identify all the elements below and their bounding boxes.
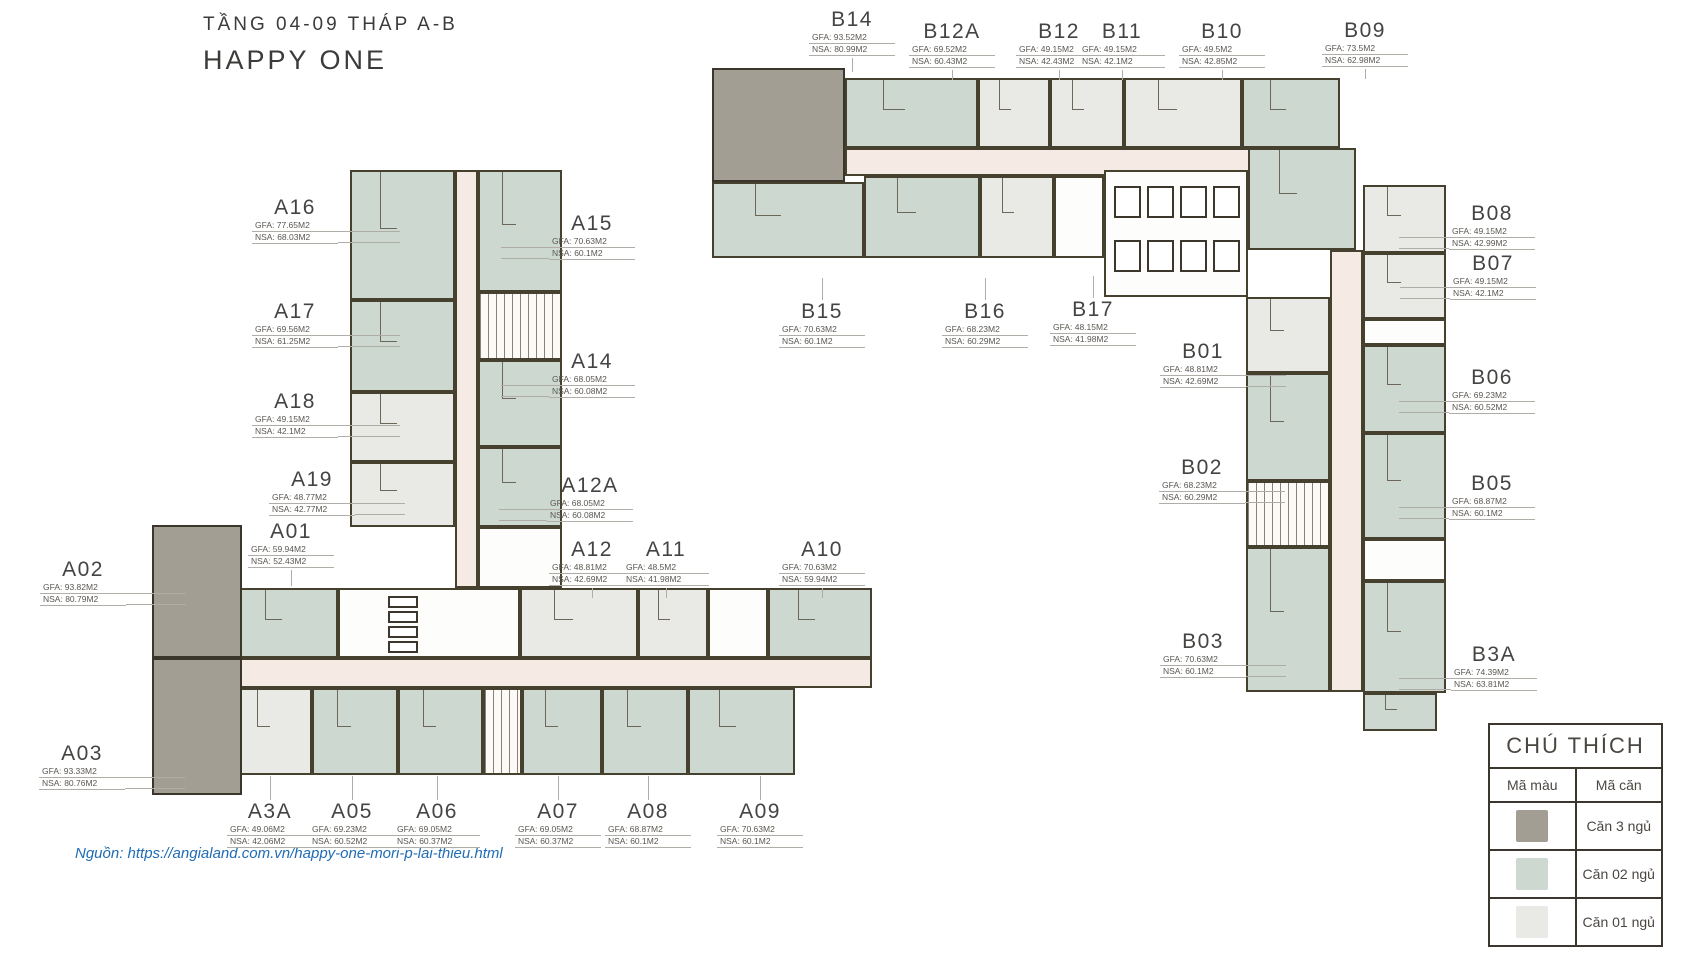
project-title: HAPPY ONE xyxy=(203,45,458,76)
unit-nsa: NSA: 61.25M2 xyxy=(252,336,338,348)
unit-nsa: NSA: 42.1M2 xyxy=(1079,56,1165,68)
footprint-b3a xyxy=(1363,581,1446,693)
elevator-shaft xyxy=(388,626,418,638)
unit-nsa: NSA: 42.1M2 xyxy=(1450,288,1536,300)
legend-label-3bed: Căn 3 ngủ xyxy=(1577,803,1662,849)
unit-id: A10 xyxy=(779,538,865,562)
corridor-a-vertical xyxy=(455,170,478,588)
unit-label-b3a: B3AGFA: 74.39M2NSA: 63.81M2 xyxy=(1451,643,1537,691)
leader-line-a15 xyxy=(501,247,549,248)
unit-id: B02 xyxy=(1159,456,1245,480)
legend: CHÚ THÍCH Mã màu Mã căn Căn 3 ngủ Căn 02… xyxy=(1488,723,1663,947)
unit-label-a09: A09GFA: 70.63M2NSA: 60.1M2 xyxy=(717,800,803,848)
unit-label-a18: A18GFA: 49.15M2NSA: 42.1M2 xyxy=(252,390,338,438)
unit-nsa: NSA: 80.76M2 xyxy=(39,778,125,790)
legend-col-unit: Mã căn xyxy=(1577,769,1662,801)
unit-label-a10: A10GFA: 70.63M2NSA: 59.94M2 xyxy=(779,538,865,586)
elevator-shaft xyxy=(388,641,418,653)
footprint-a12 xyxy=(520,588,638,658)
unit-gfa: GFA: 70.63M2 xyxy=(1160,654,1246,666)
leader-line-a3a xyxy=(270,776,271,800)
footprint-a07 xyxy=(522,688,602,775)
unit-id: B06 xyxy=(1449,366,1535,390)
unit-label-a12a: A12AGFA: 68.05M2NSA: 60.08M2 xyxy=(547,474,633,522)
footprint-b12 xyxy=(978,78,1050,148)
legend-title: CHÚ THÍCH xyxy=(1490,725,1661,769)
leader-line-b09 xyxy=(1365,69,1366,79)
unit-id: A16 xyxy=(252,196,338,220)
leader-line-a05 xyxy=(352,776,353,800)
unit-gfa: GFA: 69.05M2 xyxy=(515,824,601,836)
footprint-a18 xyxy=(350,392,455,462)
unit-id: B09 xyxy=(1322,19,1408,43)
unit-gfa: GFA: 68.87M2 xyxy=(605,824,691,836)
unit-gfa: GFA: 69.56M2 xyxy=(252,324,338,336)
unit-nsa: NSA: 60.08M2 xyxy=(549,386,635,398)
unit-gfa: GFA: 69.05M2 xyxy=(394,824,480,836)
leader-line-a15 xyxy=(501,258,549,259)
unit-nsa: NSA: 60.08M2 xyxy=(547,510,633,522)
footprint-b-mid xyxy=(1054,176,1104,258)
unit-id: B11 xyxy=(1079,20,1165,44)
unit-label-a14: A14GFA: 68.05M2NSA: 60.08M2 xyxy=(549,350,635,398)
unit-nsa: NSA: 62.98M2 xyxy=(1322,55,1408,67)
elevator-shaft xyxy=(1180,186,1207,218)
leader-line-b12 xyxy=(1059,70,1060,80)
footprint-b14 xyxy=(712,68,845,182)
unit-id: A15 xyxy=(549,212,635,236)
footprint-b16 xyxy=(864,176,980,258)
unit-nsa: NSA: 60.1M2 xyxy=(549,248,635,260)
leader-line-b10 xyxy=(1222,70,1223,80)
leader-line-b3a xyxy=(1399,678,1451,679)
footprint-a11 xyxy=(638,588,708,658)
footprint-b10 xyxy=(1124,78,1242,148)
unit-gfa: GFA: 70.63M2 xyxy=(779,324,865,336)
elevator-shaft xyxy=(388,596,418,608)
unit-label-a17: A17GFA: 69.56M2NSA: 61.25M2 xyxy=(252,300,338,348)
unit-id: B01 xyxy=(1160,340,1246,364)
unit-nsa: NSA: 42.85M2 xyxy=(1179,56,1265,68)
unit-id: A08 xyxy=(605,800,691,824)
legend-swatch-3bed xyxy=(1516,810,1548,842)
elevator-shaft xyxy=(1213,186,1240,218)
unit-label-b12a: B12AGFA: 69.52M2NSA: 60.43M2 xyxy=(909,20,995,68)
unit-label-b17: B17GFA: 48.15M2NSA: 41.98M2 xyxy=(1050,298,1136,346)
legend-label-1bed: Căn 01 ngủ xyxy=(1577,899,1662,945)
unit-id: B05 xyxy=(1449,472,1535,496)
unit-nsa: NSA: 60.52M2 xyxy=(1449,402,1535,414)
unit-label-a06: A06GFA: 69.05M2NSA: 60.37M2 xyxy=(394,800,480,848)
unit-id: B17 xyxy=(1050,298,1136,322)
unit-id: A19 xyxy=(269,468,355,492)
leader-line-b01 xyxy=(1246,386,1286,387)
leader-line-b07 xyxy=(1400,298,1450,299)
leader-line-a09 xyxy=(760,776,761,800)
unit-id: B16 xyxy=(942,300,1028,324)
unit-gfa: GFA: 48.77M2 xyxy=(269,492,355,504)
elevator-shaft xyxy=(1147,240,1174,272)
legend-col-color: Mã màu xyxy=(1490,769,1577,801)
unit-label-a08: A08GFA: 68.87M2NSA: 60.1M2 xyxy=(605,800,691,848)
unit-label-b06: B06GFA: 69.23M2NSA: 60.52M2 xyxy=(1449,366,1535,414)
unit-id: B10 xyxy=(1179,20,1265,44)
leader-line-b3a xyxy=(1399,689,1451,690)
footprint-b11 xyxy=(1050,78,1124,148)
unit-nsa: NSA: 60.52M2 xyxy=(309,836,395,848)
leader-line-a01 xyxy=(291,570,292,586)
leader-line-a16 xyxy=(338,231,400,232)
unit-label-b10: B10GFA: 49.5M2NSA: 42.85M2 xyxy=(1179,20,1265,68)
elevator-core-a xyxy=(338,588,520,658)
unit-label-a03: A03GFA: 93.33M2NSA: 80.76M2 xyxy=(39,742,125,790)
leader-line-a18 xyxy=(338,436,400,437)
footprint-b15 xyxy=(712,182,864,258)
leader-line-b12a xyxy=(952,70,953,80)
unit-gfa: GFA: 48.5M2 xyxy=(623,562,709,574)
floorplan-canvas: TẦNG 04-09 THÁP A-B HAPPY ONE xyxy=(0,0,1700,956)
unit-id: B12A xyxy=(909,20,995,44)
footprint-a05 xyxy=(312,688,398,775)
unit-id: A3A xyxy=(227,800,313,824)
footprint-a09 xyxy=(688,688,795,775)
leader-line-b03 xyxy=(1246,665,1286,666)
unit-label-b09: B09GFA: 73.5M2NSA: 62.98M2 xyxy=(1322,19,1408,67)
unit-gfa: GFA: 68.87M2 xyxy=(1449,496,1535,508)
legend-label-2bed: Căn 02 ngủ xyxy=(1577,851,1662,897)
footprint-b03 xyxy=(1246,547,1330,692)
unit-id: B15 xyxy=(779,300,865,324)
leader-line-b08 xyxy=(1399,237,1449,238)
unit-id: B3A xyxy=(1451,643,1537,667)
leader-line-b01 xyxy=(1246,375,1286,376)
unit-id: A09 xyxy=(717,800,803,824)
unit-nsa: NSA: 42.1M2 xyxy=(252,426,338,438)
unit-nsa: NSA: 42.06M2 xyxy=(227,836,313,848)
footprint-b05 xyxy=(1363,433,1446,539)
leader-line-a02 xyxy=(126,593,186,594)
footprint-a08 xyxy=(602,688,688,775)
unit-nsa: NSA: 68.03M2 xyxy=(252,232,338,244)
unit-label-a12: A12GFA: 48.81M2NSA: 42.69M2 xyxy=(549,538,635,586)
unit-gfa: GFA: 49.15M2 xyxy=(1449,226,1535,238)
footprint-b3a-ext xyxy=(1363,693,1437,731)
corridor-a-horizontal xyxy=(235,658,872,688)
leader-line-b16 xyxy=(985,278,986,300)
footprint-b-corner xyxy=(1248,148,1356,250)
leader-line-b02 xyxy=(1245,491,1285,492)
unit-gfa: GFA: 48.81M2 xyxy=(1160,364,1246,376)
leader-line-a14 xyxy=(501,385,549,386)
unit-nsa: NSA: 60.29M2 xyxy=(942,336,1028,348)
unit-nsa: NSA: 60.1M2 xyxy=(605,836,691,848)
unit-label-a11: A11GFA: 48.5M2NSA: 41.98M2 xyxy=(623,538,709,586)
unit-gfa: GFA: 48.81M2 xyxy=(549,562,635,574)
unit-nsa: NSA: 60.37M2 xyxy=(515,836,601,848)
unit-nsa: NSA: 60.43M2 xyxy=(909,56,995,68)
unit-gfa: GFA: 73.5M2 xyxy=(1322,43,1408,55)
unit-nsa: NSA: 52.43M2 xyxy=(248,556,334,568)
leader-line-a16 xyxy=(338,242,400,243)
footprint-a-mid xyxy=(708,588,768,658)
leader-line-b05 xyxy=(1399,518,1449,519)
leader-line-b02 xyxy=(1245,502,1285,503)
footprint-b-gap1 xyxy=(1363,319,1446,345)
footprint-b17 xyxy=(980,176,1054,258)
unit-label-a3a: A3AGFA: 49.06M2NSA: 42.06M2 xyxy=(227,800,313,848)
footprint-b-gap2 xyxy=(1363,539,1446,581)
unit-gfa: GFA: 68.23M2 xyxy=(942,324,1028,336)
unit-gfa: GFA: 93.33M2 xyxy=(39,766,125,778)
unit-id: B14 xyxy=(809,8,895,32)
footprint-a01 xyxy=(235,588,338,658)
unit-id: A02 xyxy=(40,558,126,582)
unit-nsa: NSA: 42.99M2 xyxy=(1449,238,1535,250)
unit-label-b08: B08GFA: 49.15M2NSA: 42.99M2 xyxy=(1449,202,1535,250)
unit-id: A18 xyxy=(252,390,338,414)
corridor-b-vertical xyxy=(1330,250,1363,692)
unit-nsa: NSA: 42.77M2 xyxy=(269,504,355,516)
unit-gfa: GFA: 49.15M2 xyxy=(252,414,338,426)
unit-gfa: GFA: 69.23M2 xyxy=(309,824,395,836)
footprint-a02 xyxy=(152,525,242,658)
unit-gfa: GFA: 68.23M2 xyxy=(1159,480,1245,492)
leader-line-b08 xyxy=(1399,248,1449,249)
footprint-a16 xyxy=(350,170,455,300)
unit-nsa: NSA: 60.1M2 xyxy=(779,336,865,348)
unit-gfa: GFA: 49.15M2 xyxy=(1450,276,1536,288)
unit-label-a05: A05GFA: 69.23M2NSA: 60.52M2 xyxy=(309,800,395,848)
footprint-b01 xyxy=(1246,297,1330,373)
leader-line-b03 xyxy=(1246,676,1286,677)
leader-line-a19 xyxy=(355,503,405,504)
unit-gfa: GFA: 74.39M2 xyxy=(1451,667,1537,679)
unit-gfa: GFA: 77.65M2 xyxy=(252,220,338,232)
footprint-b12a xyxy=(845,78,978,148)
elevator-shaft xyxy=(1114,240,1141,272)
footprint-a10 xyxy=(768,588,872,658)
unit-id: A12 xyxy=(549,538,635,562)
unit-label-b11: B11GFA: 49.15M2NSA: 42.1M2 xyxy=(1079,20,1165,68)
unit-label-b05: B05GFA: 68.87M2NSA: 60.1M2 xyxy=(1449,472,1535,520)
unit-id: A03 xyxy=(39,742,125,766)
unit-label-b02: B02GFA: 68.23M2NSA: 60.29M2 xyxy=(1159,456,1245,504)
unit-id: A14 xyxy=(549,350,635,374)
leader-line-a07 xyxy=(558,776,559,800)
unit-nsa: NSA: 63.81M2 xyxy=(1451,679,1537,691)
leader-line-b11 xyxy=(1122,70,1123,80)
unit-gfa: GFA: 69.23M2 xyxy=(1449,390,1535,402)
unit-nsa: NSA: 60.1M2 xyxy=(717,836,803,848)
elevator-shaft xyxy=(1114,186,1141,218)
leader-line-a06 xyxy=(437,776,438,800)
leader-line-b06 xyxy=(1399,401,1449,402)
unit-gfa: GFA: 68.05M2 xyxy=(547,498,633,510)
unit-id: A07 xyxy=(515,800,601,824)
unit-gfa: GFA: 59.94M2 xyxy=(248,544,334,556)
unit-label-a02: A02GFA: 93.82M2NSA: 80.79M2 xyxy=(40,558,126,606)
leader-line-a03 xyxy=(125,788,185,789)
unit-gfa: GFA: 69.52M2 xyxy=(909,44,995,56)
unit-nsa: NSA: 60.37M2 xyxy=(394,836,480,848)
unit-id: A12A xyxy=(547,474,633,498)
unit-gfa: GFA: 93.82M2 xyxy=(40,582,126,594)
leader-line-a12a xyxy=(499,509,547,510)
unit-nsa: NSA: 41.98M2 xyxy=(623,574,709,586)
leader-line-a14 xyxy=(501,396,549,397)
footprint-a06 xyxy=(398,688,483,775)
leader-line-b15 xyxy=(822,278,823,300)
footprint-b09 xyxy=(1242,78,1340,148)
footprint-a3a xyxy=(235,688,312,775)
unit-id: A05 xyxy=(309,800,395,824)
stairwell-a-lower xyxy=(483,688,522,775)
unit-label-b15: B15GFA: 70.63M2NSA: 60.1M2 xyxy=(779,300,865,348)
unit-label-b01: B01GFA: 48.81M2NSA: 42.69M2 xyxy=(1160,340,1246,388)
footprint-b02 xyxy=(1246,373,1330,481)
unit-gfa: GFA: 68.05M2 xyxy=(549,374,635,386)
leader-line-b14 xyxy=(852,58,853,72)
elevator-shaft xyxy=(388,611,418,623)
elevator-shaft xyxy=(1147,186,1174,218)
floor-title: TẦNG 04-09 THÁP A-B xyxy=(203,14,458,36)
unit-label-a15: A15GFA: 70.63M2NSA: 60.1M2 xyxy=(549,212,635,260)
unit-nsa: NSA: 41.98M2 xyxy=(1050,334,1136,346)
leader-line-a18 xyxy=(338,425,400,426)
unit-gfa: GFA: 93.52M2 xyxy=(809,32,895,44)
leader-line-a08 xyxy=(648,776,649,800)
leader-line-a10 xyxy=(822,588,823,598)
leader-line-a17 xyxy=(338,335,400,336)
unit-id: B03 xyxy=(1160,630,1246,654)
unit-id: A17 xyxy=(252,300,338,324)
leader-line-a19 xyxy=(355,514,405,515)
unit-gfa: GFA: 70.63M2 xyxy=(549,236,635,248)
legend-swatch-2bed xyxy=(1516,858,1548,890)
unit-nsa: NSA: 60.1M2 xyxy=(1160,666,1246,678)
leader-line-b07 xyxy=(1400,287,1450,288)
unit-nsa: NSA: 60.1M2 xyxy=(1449,508,1535,520)
unit-label-b07: B07GFA: 49.15M2NSA: 42.1M2 xyxy=(1450,252,1536,300)
leader-line-b06 xyxy=(1399,412,1449,413)
unit-gfa: GFA: 49.5M2 xyxy=(1179,44,1265,56)
unit-gfa: GFA: 70.63M2 xyxy=(717,824,803,836)
unit-gfa: GFA: 49.15M2 xyxy=(1079,44,1165,56)
leader-line-a12 xyxy=(592,588,593,598)
elevator-shaft xyxy=(1180,240,1207,272)
leader-line-a11 xyxy=(666,588,667,598)
unit-label-b03: B03GFA: 70.63M2NSA: 60.1M2 xyxy=(1160,630,1246,678)
unit-id: B08 xyxy=(1449,202,1535,226)
legend-swatch-1bed xyxy=(1516,906,1548,938)
unit-label-b14: B14GFA: 93.52M2NSA: 80.99M2 xyxy=(809,8,895,56)
footprint-a03 xyxy=(152,658,242,795)
page-header: TẦNG 04-09 THÁP A-B HAPPY ONE xyxy=(203,14,458,76)
footprint-b08 xyxy=(1363,185,1446,253)
unit-id: A11 xyxy=(623,538,709,562)
unit-label-a16: A16GFA: 77.65M2NSA: 68.03M2 xyxy=(252,196,338,244)
unit-nsa: NSA: 42.69M2 xyxy=(1160,376,1246,388)
leader-line-a03 xyxy=(125,777,185,778)
footprint-b06 xyxy=(1363,345,1446,433)
leader-line-a12a xyxy=(499,520,547,521)
leader-line-a02 xyxy=(126,604,186,605)
footprint-a19 xyxy=(350,462,455,527)
unit-label-a01: A01GFA: 59.94M2NSA: 52.43M2 xyxy=(248,520,334,568)
unit-label-b16: B16GFA: 68.23M2NSA: 60.29M2 xyxy=(942,300,1028,348)
leader-line-a17 xyxy=(338,346,400,347)
unit-gfa: GFA: 49.06M2 xyxy=(227,824,313,836)
unit-gfa: GFA: 48.15M2 xyxy=(1050,322,1136,334)
unit-nsa: NSA: 42.69M2 xyxy=(549,574,635,586)
unit-nsa: NSA: 59.94M2 xyxy=(779,574,865,586)
unit-nsa: NSA: 80.79M2 xyxy=(40,594,126,606)
unit-id: A06 xyxy=(394,800,480,824)
unit-gfa: GFA: 70.63M2 xyxy=(779,562,865,574)
footprint-b07 xyxy=(1363,253,1446,319)
leader-line-b05 xyxy=(1399,507,1449,508)
unit-nsa: NSA: 60.29M2 xyxy=(1159,492,1245,504)
unit-label-a07: A07GFA: 69.05M2NSA: 60.37M2 xyxy=(515,800,601,848)
unit-label-a19: A19GFA: 48.77M2NSA: 42.77M2 xyxy=(269,468,355,516)
unit-id: A01 xyxy=(248,520,334,544)
elevator-shaft xyxy=(1213,240,1240,272)
unit-id: B07 xyxy=(1450,252,1536,276)
unit-nsa: NSA: 80.99M2 xyxy=(809,44,895,56)
leader-line-b17 xyxy=(1093,276,1094,298)
